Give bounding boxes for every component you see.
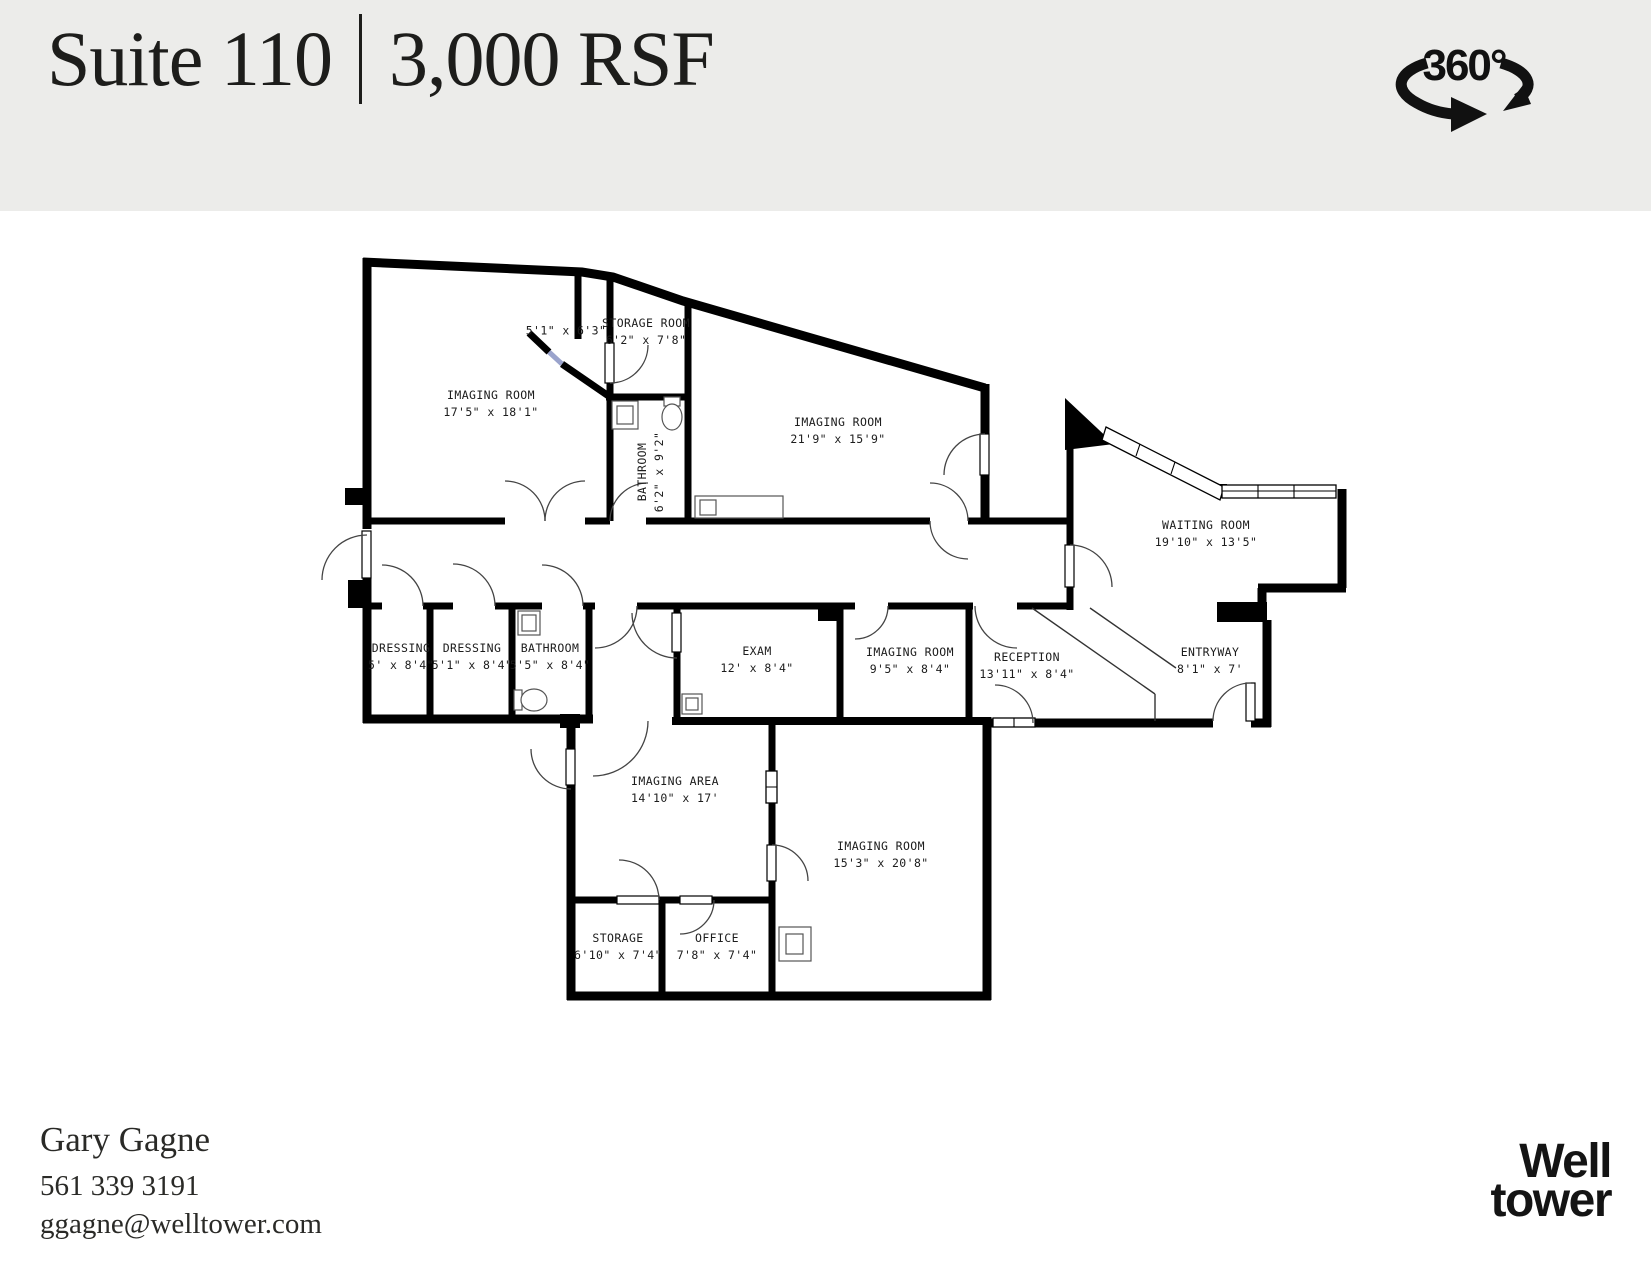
- contact-email[interactable]: ggagne@welltower.com: [40, 1206, 322, 1244]
- room-label-bathroom-mid: BATHROOM 5'5" x 8'4": [510, 640, 591, 675]
- welltower-logo: Well tower: [1490, 1142, 1611, 1221]
- room-dims: 13'11" x 8'4": [979, 666, 1074, 683]
- logo-line-2: tower: [1490, 1181, 1611, 1220]
- room-label-imaging-room-3: IMAGING ROOM 9'5" x 8'4": [866, 644, 954, 679]
- room-dims: 9'5" x 8'4": [866, 661, 954, 678]
- room-name: IMAGING ROOM: [443, 387, 538, 404]
- room-name: IMAGING ROOM: [790, 414, 885, 431]
- room-label-reception: RECEPTION 13'11" x 8'4": [979, 649, 1074, 684]
- room-name: STORAGE ROOM: [602, 315, 690, 332]
- floor-plan-drawing: [0, 0, 1651, 1275]
- room-label-niche: 5'1" x 6'3": [526, 322, 607, 339]
- room-dims: 5'1" x 8'4": [432, 657, 513, 674]
- contact-block: Gary Gagne 561 339 3191 ggagne@welltower…: [40, 1120, 322, 1243]
- room-name: ENTRYWAY: [1177, 644, 1243, 661]
- room-label-imaging-area: IMAGING AREA 14'10" x 17': [631, 773, 719, 808]
- room-name: DRESSING: [432, 640, 513, 657]
- room-dims: 7'8" x 7'4": [677, 947, 758, 964]
- room-name: OFFICE: [677, 930, 758, 947]
- diagonal-door-leaf: [549, 352, 562, 364]
- room-label-dressing-1: DRESSING 5' x 8'4": [368, 640, 434, 675]
- room-dims: 19'10" x 13'5": [1155, 534, 1258, 551]
- room-dims: 6'2" x 7'8": [602, 332, 690, 349]
- room-dims: 15'3" x 20'8": [833, 855, 928, 872]
- room-dims: 14'10" x 17': [631, 790, 719, 807]
- room-label-storage-bottom: STORAGE 6'10" x 7'4": [574, 930, 662, 965]
- room-label-imaging-room-1: IMAGING ROOM 17'5" x 18'1": [443, 387, 538, 422]
- room-dims: 6'10" x 7'4": [574, 947, 662, 964]
- room-name: DRESSING: [368, 640, 434, 657]
- room-name: EXAM: [720, 643, 793, 660]
- room-name: WAITING ROOM: [1155, 517, 1258, 534]
- room-label-bathroom-top: BATHROOM 6'2" x 9'2": [634, 432, 669, 513]
- room-name: BATHROOM: [634, 432, 651, 513]
- room-label-exam: EXAM 12' x 8'4": [720, 643, 793, 678]
- room-label-office: OFFICE 7'8" x 7'4": [677, 930, 758, 965]
- room-dims: 5'5" x 8'4": [510, 657, 591, 674]
- room-label-dressing-2: DRESSING 5'1" x 8'4": [432, 640, 513, 675]
- room-dims: 12' x 8'4": [720, 660, 793, 677]
- room-dims: 21'9" x 15'9": [790, 431, 885, 448]
- room-dims: 5'1" x 6'3": [526, 322, 607, 339]
- room-name: IMAGING ROOM: [866, 644, 954, 661]
- room-label-entryway: ENTRYWAY 8'1" x 7': [1177, 644, 1243, 679]
- room-label-imaging-room-4: IMAGING ROOM 15'3" x 20'8": [833, 838, 928, 873]
- contact-phone: 561 339 3191: [40, 1168, 322, 1206]
- room-name: BATHROOM: [510, 640, 591, 657]
- room-dims: 6'2" x 9'2": [651, 432, 668, 513]
- room-label-imaging-room-2: IMAGING ROOM 21'9" x 15'9": [790, 414, 885, 449]
- room-name: IMAGING ROOM: [833, 838, 928, 855]
- room-label-waiting-room: WAITING ROOM 19'10" x 13'5": [1155, 517, 1258, 552]
- room-dims: 8'1" x 7': [1177, 661, 1243, 678]
- room-dims: 5' x 8'4": [368, 657, 434, 674]
- room-name: STORAGE: [574, 930, 662, 947]
- room-name: IMAGING AREA: [631, 773, 719, 790]
- room-name: RECEPTION: [979, 649, 1074, 666]
- floor-plan: IMAGING ROOM 17'5" x 18'1" 5'1" x 6'3" S…: [0, 0, 1651, 1275]
- room-dims: 17'5" x 18'1": [443, 404, 538, 421]
- room-label-storage-room: STORAGE ROOM 6'2" x 7'8": [602, 315, 690, 350]
- walls-layer: [363, 258, 1346, 1000]
- contact-name: Gary Gagne: [40, 1120, 322, 1160]
